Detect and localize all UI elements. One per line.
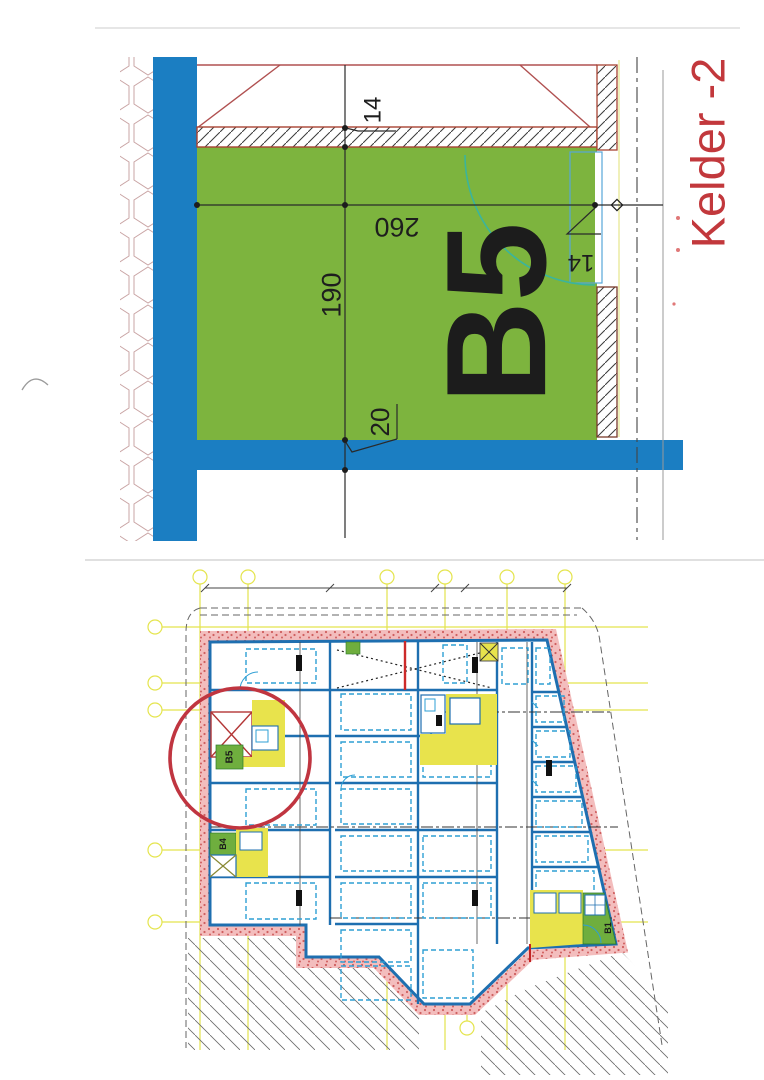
bottom-wall-blue	[153, 440, 683, 470]
floorplan-drawing: 260 190 20 14 14 B5 Kelder -2	[0, 0, 764, 1080]
pen-curl-mark	[22, 379, 48, 390]
door-opening	[595, 152, 617, 283]
room-label-b5: B5	[225, 750, 236, 763]
utility-cluster-center	[420, 694, 497, 765]
masonry-pier-lower	[597, 287, 617, 437]
dim-top-14: 14	[359, 97, 386, 124]
mini-green-box	[346, 642, 360, 654]
room-label-b5-large: B5	[417, 222, 576, 404]
room-label-b1: B1	[603, 922, 613, 934]
overlay-red-lines	[197, 65, 597, 128]
room-label-b4: B4	[218, 838, 228, 850]
overview-plan: B5 B4	[148, 570, 668, 1075]
stair-x-box	[210, 855, 236, 877]
scanned-floorplan-page: 260 190 20 14 14 B5 Kelder -2	[0, 0, 764, 1080]
dim-wall-20: 20	[365, 408, 395, 437]
shaft-x-box	[480, 643, 498, 661]
margin-red-dots	[672, 216, 680, 306]
dim-width-260: 260	[374, 212, 419, 242]
overview-dimension-line	[201, 584, 571, 592]
b4-cluster: B4	[210, 828, 268, 877]
insulation-hex-strip	[120, 57, 153, 541]
floor-title: Kelder -2	[681, 58, 734, 249]
masonry-pier-upper	[597, 65, 617, 150]
detail-plan: 260 190 20 14 14 B5	[120, 57, 683, 541]
dim-depth-190: 190	[316, 272, 346, 317]
masonry-wall-top	[197, 127, 597, 147]
